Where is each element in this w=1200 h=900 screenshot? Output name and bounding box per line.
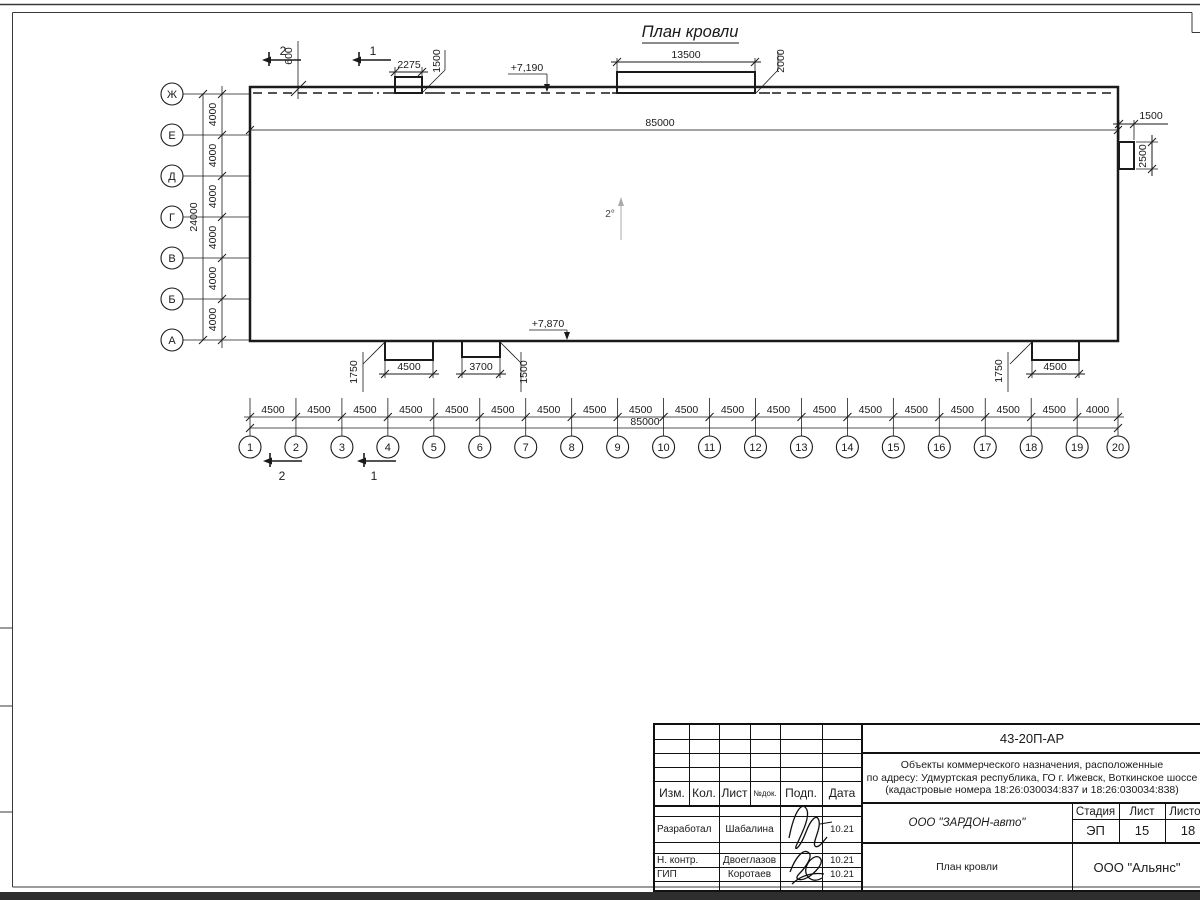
section-2-bottom-label: 2 <box>279 469 286 483</box>
col-segment-label: 4500 <box>951 404 975 416</box>
tb-sheets-value: 18 <box>1165 819 1200 842</box>
tb-sheet-value: 15 <box>1119 819 1165 842</box>
col-axis-number: 8 <box>569 442 575 454</box>
col-segment-label: 4000 <box>1086 404 1110 416</box>
col-axis-number: 17 <box>979 442 991 454</box>
tb-date-gip: 10.21 <box>822 867 862 881</box>
tb-name-ncontrol: Двоеглазов <box>719 853 780 867</box>
title-block: Изм. Кол. Лист №док. Подп. Дата Разработ… <box>653 723 1200 892</box>
col-axis-number: 14 <box>841 442 853 454</box>
col-axis-number: 11 <box>704 442 715 454</box>
dim-85000-top <box>246 126 1122 134</box>
dim-canopyB-w: 3700 <box>469 361 493 373</box>
col-segment-label: 4500 <box>399 404 423 416</box>
tb-address: Объекты коммерческого назначения, распол… <box>862 754 1200 802</box>
row-step-label: 4000 <box>207 144 219 168</box>
tb-name-gip: Коротаев <box>719 867 780 881</box>
section-1-bottom-label: 1 <box>371 469 378 483</box>
tb-sheet-label: Лист <box>1119 804 1165 819</box>
tb-sheets-label: Листов <box>1165 804 1200 819</box>
dim-total-top: 85000 <box>645 117 674 129</box>
col-segment-label: 4500 <box>721 404 745 416</box>
tb-drawing-name: План кровли <box>862 844 1072 890</box>
dim-canopyC-h: 1750 <box>993 359 1005 383</box>
tb-stage-value: ЭП <box>1072 819 1119 842</box>
col-segment-label: 4500 <box>813 404 837 416</box>
tb-col-izm: Изм. <box>655 781 689 805</box>
col-dim-lines <box>244 417 1124 432</box>
row-axis-letter: Ж <box>167 89 177 101</box>
col-segment-label: 4500 <box>675 404 699 416</box>
tb-date-developer: 10.21 <box>822 816 862 842</box>
tb-col-list: Лист <box>719 781 750 805</box>
tb-company: ООО "ЗАРДОН-авто" <box>862 804 1072 842</box>
tb-col-podp: Подп. <box>780 781 822 805</box>
tb-stage-label: Стадия <box>1072 804 1119 819</box>
elevation-top-mark <box>508 74 550 92</box>
dim-right-w: 1500 <box>1139 110 1163 122</box>
tb-firm: ООО "Альянс" <box>1072 844 1200 890</box>
col-segment-label: 4500 <box>537 404 561 416</box>
dim-canopyC-w: 4500 <box>1043 361 1067 373</box>
section-2-top-label: 2 <box>280 44 287 58</box>
dim-canopyA-h: 1750 <box>348 360 360 384</box>
dim-canopy2-h: 2000 <box>775 49 787 73</box>
col-segment-label: 4500 <box>1042 404 1066 416</box>
row-step-label: 4000 <box>207 185 219 209</box>
dim-canopyB-h: 1500 <box>518 360 530 384</box>
col-axis-number: 13 <box>795 442 807 454</box>
tb-name-developer: Шабалина <box>719 816 780 842</box>
slope-arrow <box>618 197 624 240</box>
col-segment-label: 4500 <box>583 404 607 416</box>
dim-canopyA-w: 4500 <box>397 361 421 373</box>
row-axis-letter: Б <box>168 294 175 306</box>
dim-col-total: 85000 <box>630 416 659 428</box>
row-step-label: 4000 <box>207 103 219 127</box>
col-segment-label: 4500 <box>307 404 331 416</box>
col-axis-number: 12 <box>749 442 761 454</box>
col-axis-number: 15 <box>887 442 899 454</box>
tb-col-data: Дата <box>822 781 862 805</box>
col-segment-label: 4500 <box>261 404 285 416</box>
col-axis-number: 20 <box>1112 442 1124 454</box>
row-step-label: 4000 <box>207 226 219 250</box>
tb-col-kol: Кол. <box>689 781 719 805</box>
row-step-label: 4000 <box>207 308 219 332</box>
tb-address-line3: (кадастровые номера 18:26:030034:837 и 1… <box>885 784 1179 797</box>
building-outline <box>250 87 1118 341</box>
section-1-top-label: 1 <box>370 44 377 58</box>
col-axis-number: 2 <box>293 442 299 454</box>
slope-label: 2° <box>605 209 615 220</box>
elevation-bottom-label: +7,870 <box>532 318 565 330</box>
dim-canopy1-h: 1500 <box>431 49 443 73</box>
col-axis-number: 3 <box>339 442 345 454</box>
col-segment-label: 4500 <box>859 404 883 416</box>
row-axis-letter: Е <box>168 130 175 142</box>
elevation-top-label: +7,190 <box>511 62 544 74</box>
col-segment-label: 4500 <box>445 404 469 416</box>
col-segment-label: 4500 <box>629 404 653 416</box>
tb-address-line1: Объекты коммерческого назначения, распол… <box>901 759 1163 772</box>
col-axis-number: 1 <box>247 442 253 454</box>
dim-row-total: 24000 <box>188 202 200 231</box>
row-axis-letter: Г <box>169 212 175 224</box>
col-segment-label: 4500 <box>905 404 929 416</box>
dim-canopy1-w: 2275 <box>397 59 421 71</box>
col-segment-label: 4500 <box>997 404 1021 416</box>
col-axis-number: 18 <box>1025 442 1037 454</box>
tb-role-gip: ГИП <box>657 867 719 881</box>
tb-date-ncontrol: 10.21 <box>822 853 862 867</box>
tb-role-developer: Разработал <box>657 816 719 842</box>
tb-doc-code: 43-20П-АР <box>862 725 1200 752</box>
tb-address-line2: по адресу: Удмуртская республика, ГО г. … <box>867 772 1198 785</box>
col-axis-number: 5 <box>431 442 437 454</box>
elevation-bottom-mark <box>529 330 570 340</box>
drawing-sheet: { "sheet": { "plan": { "title": "План кр… <box>0 0 1200 900</box>
dim-right-h: 2500 <box>1137 144 1149 168</box>
col-axis-number: 6 <box>477 442 483 454</box>
sheet-bottom-edge <box>0 892 1200 900</box>
col-axis-number: 19 <box>1071 442 1083 454</box>
col-axis-number: 16 <box>933 442 945 454</box>
row-axis-letter: Д <box>168 171 176 183</box>
col-segment-label: 4500 <box>353 404 377 416</box>
col-segment-label: 4500 <box>491 404 515 416</box>
col-axis-number: 4 <box>385 442 391 454</box>
row-axis-letter: А <box>168 335 176 347</box>
col-axis-number: 7 <box>523 442 529 454</box>
col-axis-number: 10 <box>657 442 669 454</box>
col-axis-number: 9 <box>615 442 621 454</box>
col-segment-label: 4500 <box>767 404 791 416</box>
row-axis-letter: В <box>168 253 175 265</box>
row-step-label: 4000 <box>207 267 219 291</box>
dim-canopy2-w: 13500 <box>671 49 700 61</box>
plan-title: План кровли <box>642 23 739 41</box>
tb-role-ncontrol: Н. контр. <box>657 853 719 867</box>
tb-col-ndok: №док. <box>750 781 780 805</box>
